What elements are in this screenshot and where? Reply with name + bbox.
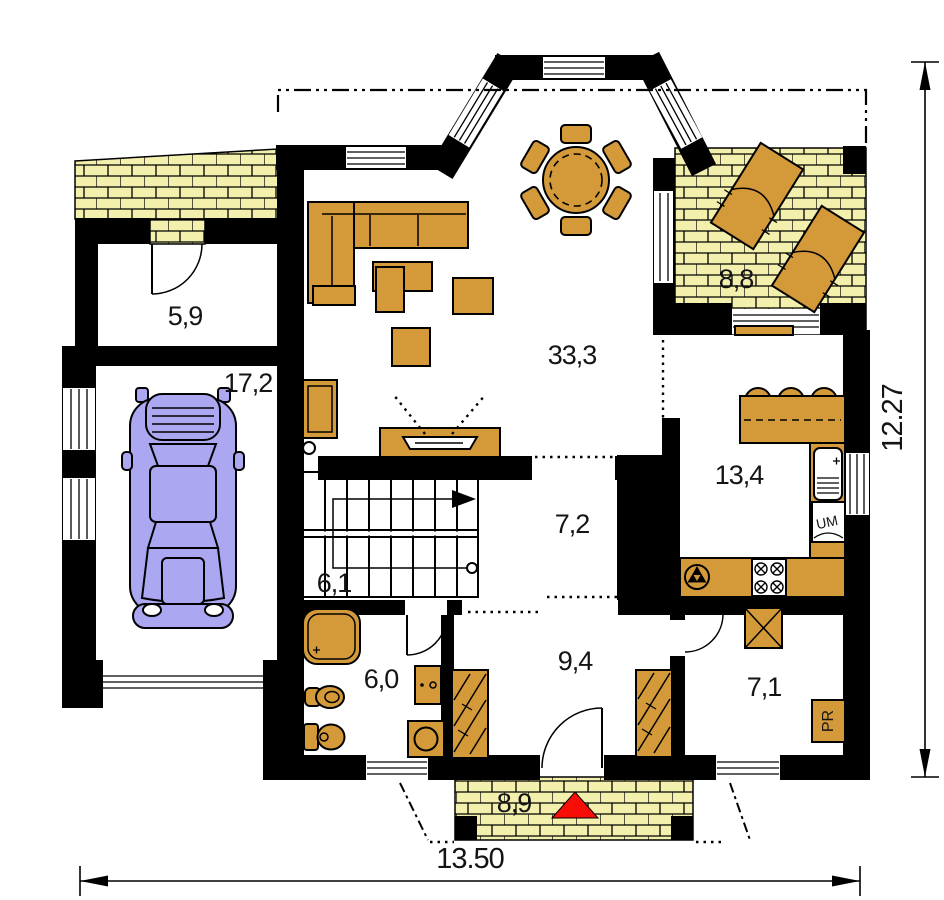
- washing-machine: [408, 721, 444, 757]
- dining-table: [543, 147, 609, 213]
- toilet: [297, 724, 345, 750]
- vestibule-door-recess: [150, 219, 205, 244]
- vestibule-door: [152, 244, 202, 294]
- stair-direction-arrow: [452, 490, 476, 508]
- terrace-glazed-door: [654, 191, 673, 283]
- wardrobe-right: [636, 670, 672, 757]
- room-label-living: 33,3: [548, 340, 597, 370]
- room-label-vestibule: 5,9: [168, 301, 203, 331]
- dishwasher: UM: [812, 502, 845, 542]
- living-top-window: [346, 147, 406, 168]
- bathroom-cabinet: [415, 666, 441, 704]
- garage-door: [103, 672, 263, 692]
- room-label-terrace: 8,8: [719, 264, 754, 294]
- garage-window-1: [63, 388, 95, 450]
- stove: [752, 559, 786, 596]
- kitchen-windowsill: [735, 326, 793, 335]
- room-label-hall: 7,2: [555, 509, 590, 539]
- utility-bottom-window: [716, 757, 780, 779]
- bathtub: [303, 609, 360, 664]
- dimension-height: 12.27: [877, 384, 909, 452]
- room-label-garage: 17,2: [224, 368, 273, 398]
- bay-top-window: [543, 57, 605, 78]
- dining-set: [520, 125, 633, 235]
- bidet: [305, 686, 344, 708]
- room-label-stairhall: 6,1: [317, 568, 352, 598]
- room-label-utility: 7,1: [747, 672, 782, 702]
- bathroom-bottom-window: [366, 757, 428, 779]
- porch-corner-right: [671, 816, 693, 840]
- room-label-kitchen: 13,4: [715, 460, 765, 490]
- porch-corner-left: [455, 816, 477, 840]
- room-label-entryhall: 9,4: [558, 646, 594, 676]
- wardrobe-left: [452, 670, 488, 758]
- stair-start-post: [467, 563, 477, 573]
- garage-window-2: [63, 478, 95, 540]
- walkway-bricks: [75, 149, 278, 219]
- kitchen-sink: [814, 448, 842, 500]
- car: [122, 388, 244, 628]
- tv-board: [380, 394, 500, 457]
- living-room-furniture: [303, 125, 632, 457]
- pantry-label: PR: [820, 710, 837, 732]
- storage-furniture: PR: [452, 608, 845, 758]
- porch-overhang-right: [730, 783, 750, 840]
- wall-end-post: [303, 442, 315, 454]
- room-label-bathroom: 6,0: [364, 664, 399, 694]
- room-label-porch: 8,9: [497, 788, 532, 818]
- floor-plan-page: UM: [0, 0, 944, 900]
- dimension-width: 13.50: [436, 843, 504, 875]
- utility-sink-unit: [745, 608, 782, 648]
- porch-overhang-left: [400, 783, 428, 840]
- breakfast-bar: [740, 388, 845, 443]
- floor-plan-drawing: UM: [0, 0, 944, 900]
- utility-door: [685, 614, 723, 652]
- pantry-cabinet: PR: [812, 700, 845, 742]
- armchair-2: [392, 328, 430, 366]
- ottoman: [376, 267, 404, 312]
- entrance-door: [542, 708, 602, 768]
- kitchen-right-window: [844, 453, 869, 515]
- armchair-1: [453, 278, 493, 314]
